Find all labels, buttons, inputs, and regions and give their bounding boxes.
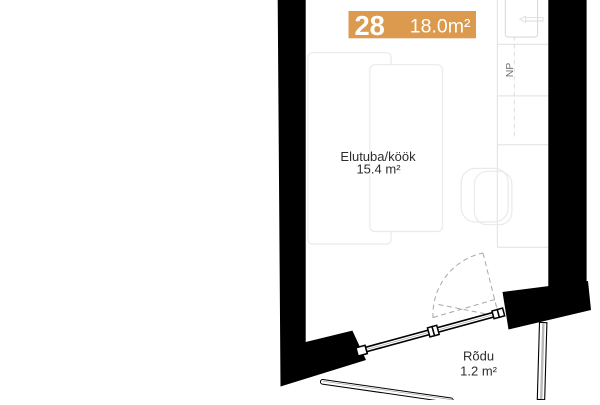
- svg-text:1.2 m²: 1.2 m²: [460, 363, 498, 378]
- svg-text:Rõdu: Rõdu: [463, 349, 494, 364]
- svg-text:28: 28: [355, 10, 385, 41]
- svg-text:18.0m²: 18.0m²: [410, 16, 471, 38]
- svg-text:NP: NP: [504, 63, 516, 78]
- svg-text:15.4 m²: 15.4 m²: [356, 162, 401, 177]
